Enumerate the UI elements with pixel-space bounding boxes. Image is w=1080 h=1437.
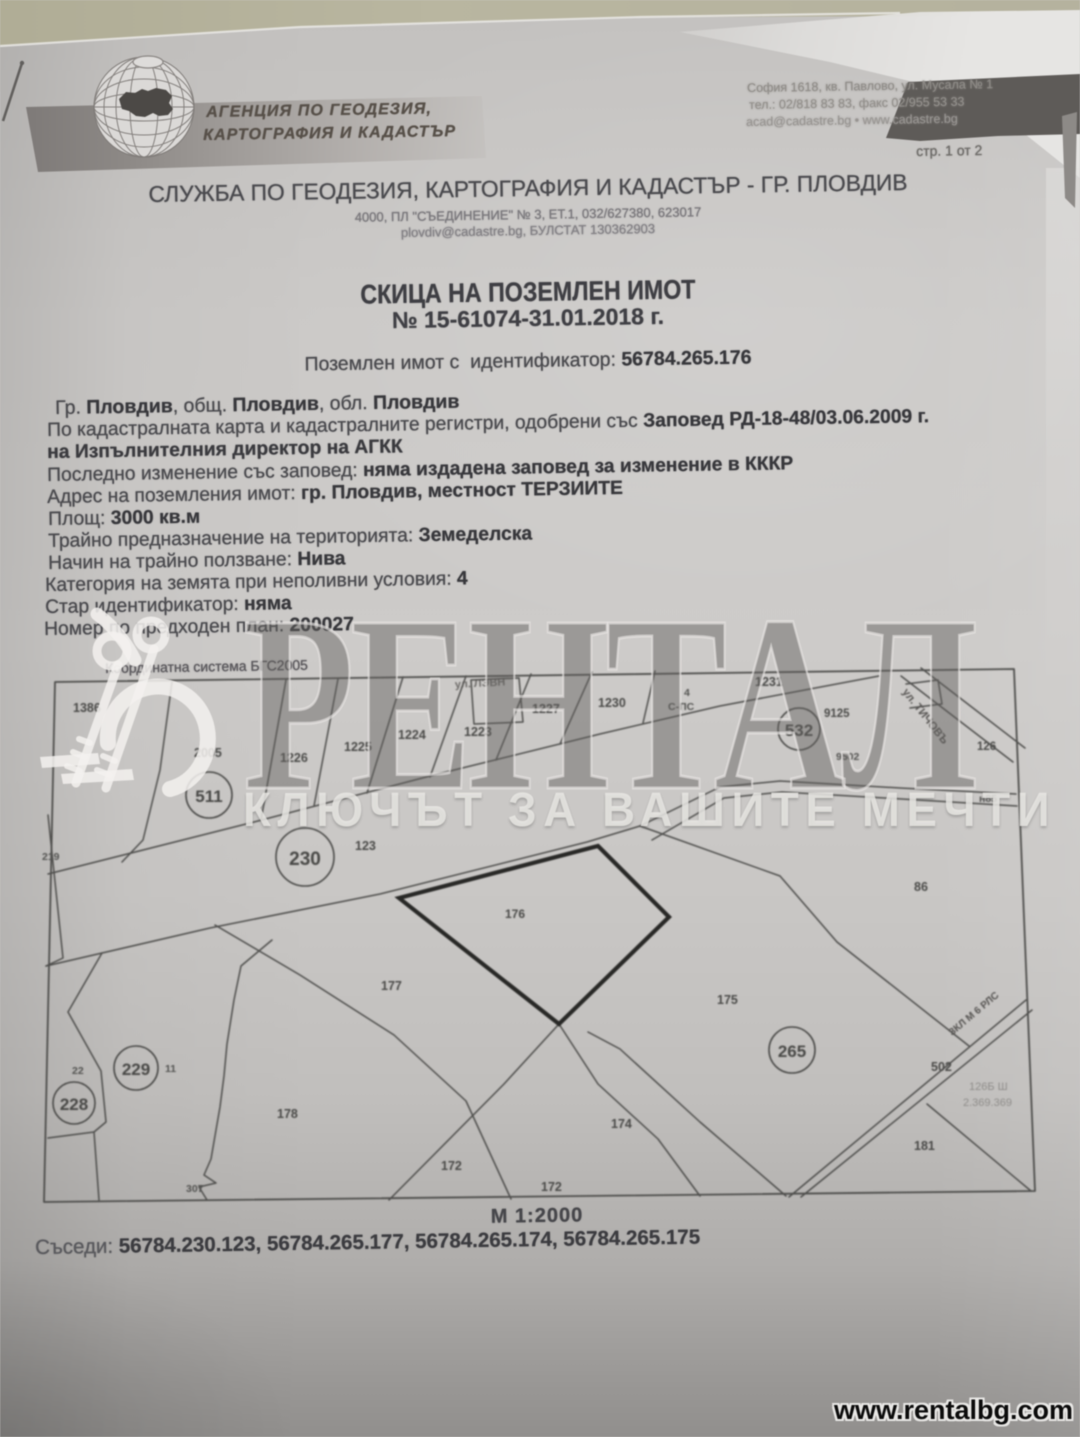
svg-text:ЗКЛ М 6 РЛС: ЗКЛ М 6 РЛС (947, 990, 1001, 1038)
svg-text:176: 176 (505, 907, 525, 921)
svg-text:307: 307 (186, 1183, 204, 1195)
svg-text:178: 178 (277, 1107, 298, 1121)
svg-text:172: 172 (541, 1180, 562, 1194)
svg-text:174: 174 (611, 1117, 632, 1131)
svg-text:230: 230 (289, 849, 321, 870)
svg-text:2.369.369: 2.369.369 (963, 1097, 1012, 1109)
svg-text:181: 181 (914, 1139, 935, 1153)
svg-text:177: 177 (381, 979, 402, 993)
svg-text:22: 22 (72, 1065, 84, 1077)
svg-text:126: 126 (977, 741, 996, 753)
svg-text:228: 228 (60, 1095, 88, 1114)
svg-text:229: 229 (122, 1060, 150, 1079)
svg-text:175: 175 (717, 993, 738, 1007)
svg-text:172: 172 (441, 1159, 462, 1173)
svg-text:11: 11 (165, 1063, 176, 1075)
svg-text:502: 502 (931, 1060, 952, 1074)
svg-text:265: 265 (778, 1042, 806, 1061)
svg-text:126Б Ш: 126Б Ш (969, 1081, 1008, 1093)
svg-text:86: 86 (914, 880, 928, 894)
